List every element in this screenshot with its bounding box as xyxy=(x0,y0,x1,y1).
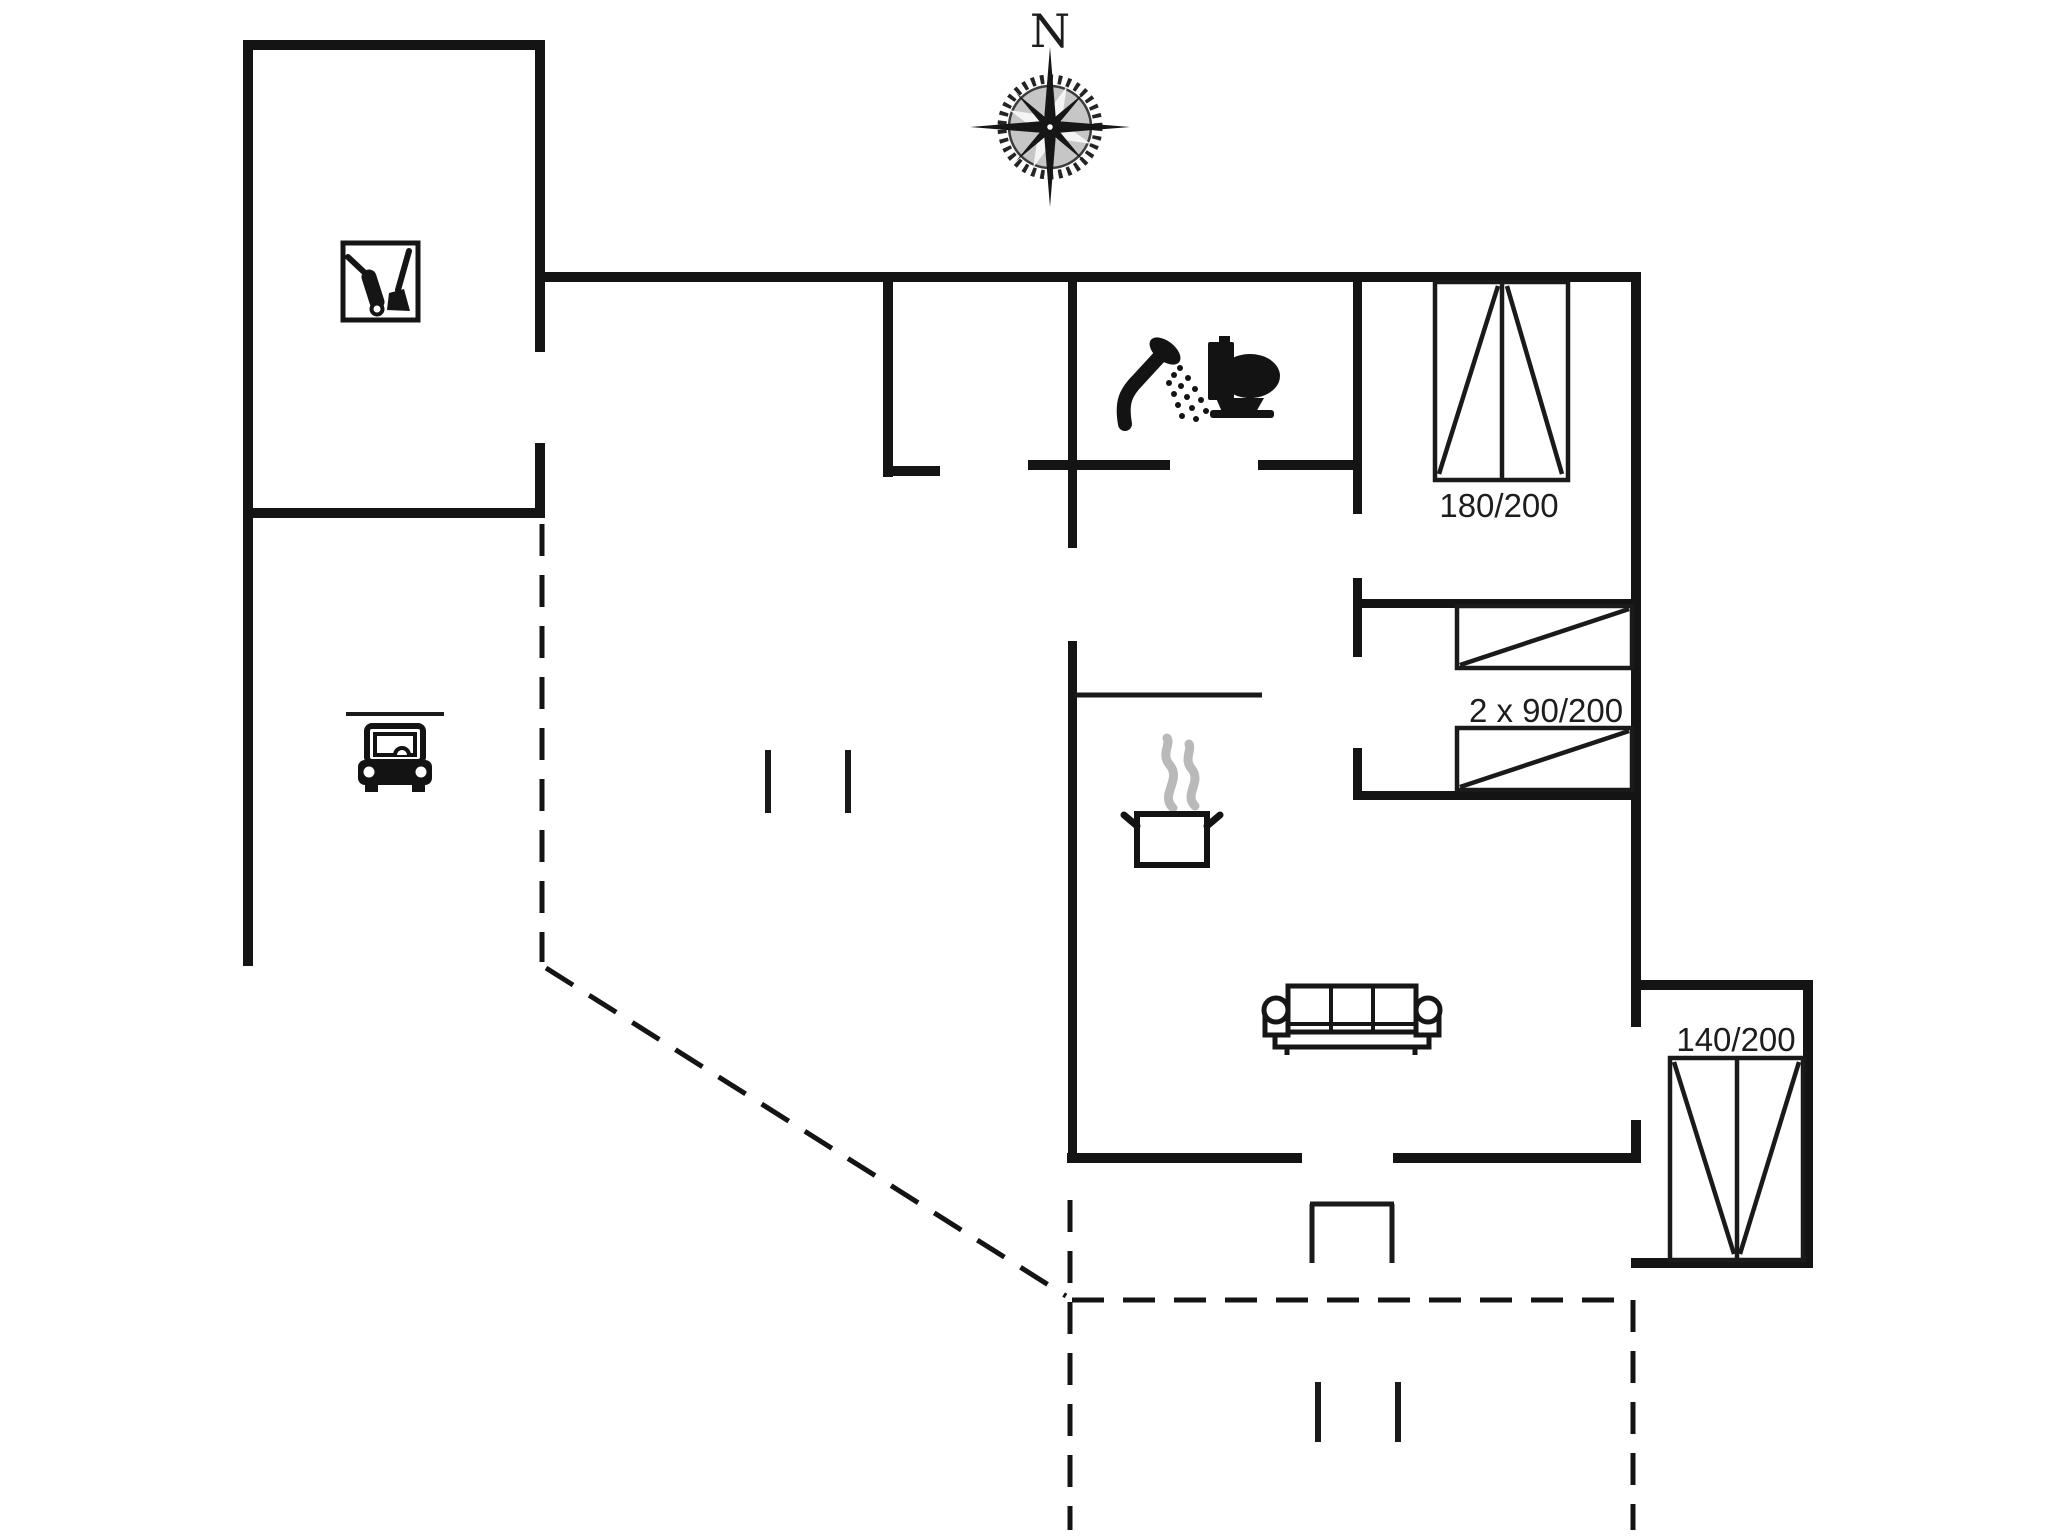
open-boundary-layer xyxy=(542,524,1633,1530)
bedroom2-south-wall xyxy=(1353,791,1641,800)
beds-layer xyxy=(1435,282,1803,1260)
shower-icon xyxy=(1124,332,1209,424)
car-icon xyxy=(358,726,432,792)
bunk-beds-size-label: 2 x 90/200 xyxy=(1469,692,1623,729)
carport-diagonal-boundary xyxy=(546,968,1066,1296)
labels-layer: N180/2002 x 90/200140/200 xyxy=(1030,4,1796,1058)
fixtures-layer xyxy=(346,695,1398,1442)
hall-west-wall xyxy=(883,282,893,477)
floor-plan: N180/2002 x 90/200140/200 xyxy=(0,0,2048,1536)
bathroom-south-wall-west xyxy=(1028,460,1170,470)
floor-plan-canvas: N180/2002 x 90/200140/200 xyxy=(0,0,2048,1536)
bed-double-180-200 xyxy=(1435,282,1568,480)
compass-rose-icon xyxy=(970,47,1130,207)
bed-double-size-label: 180/200 xyxy=(1439,487,1558,524)
bunk-bed-upper-90-200 xyxy=(1457,606,1632,668)
bed-annex-size-label: 140/200 xyxy=(1676,1021,1795,1058)
carport-west-wall xyxy=(243,518,253,966)
sofa-icon xyxy=(1264,986,1440,1055)
hall-south-wall-stub xyxy=(883,466,940,476)
utility-room-east-wall-lower xyxy=(535,443,545,518)
utility-carport-divider-wall xyxy=(243,508,545,518)
cleaning-equipment-icon xyxy=(343,243,418,320)
toilet-icon xyxy=(1208,336,1280,418)
bedroom2-west-wall-lower xyxy=(1353,748,1362,795)
bedroom1-west-wall xyxy=(1353,282,1362,514)
utility-room-west-wall xyxy=(243,40,253,518)
utility-room-east-wall-upper xyxy=(535,40,545,352)
bathroom-west-wall xyxy=(1068,282,1077,548)
bunk-bed-lower-90-200 xyxy=(1457,728,1632,790)
living-room-south-wall-east xyxy=(1393,1153,1641,1163)
bedroom2-west-wall-upper xyxy=(1353,578,1362,657)
cooking-pot-icon xyxy=(1124,738,1220,865)
living-room-south-wall-west xyxy=(1067,1153,1302,1163)
bed-annex-140-200 xyxy=(1670,1058,1803,1260)
annex-north-wall xyxy=(1641,980,1813,990)
bathroom-south-wall-east xyxy=(1258,460,1362,470)
kitchen-west-wall xyxy=(1068,641,1077,1153)
utility-room-north-wall xyxy=(243,40,545,50)
